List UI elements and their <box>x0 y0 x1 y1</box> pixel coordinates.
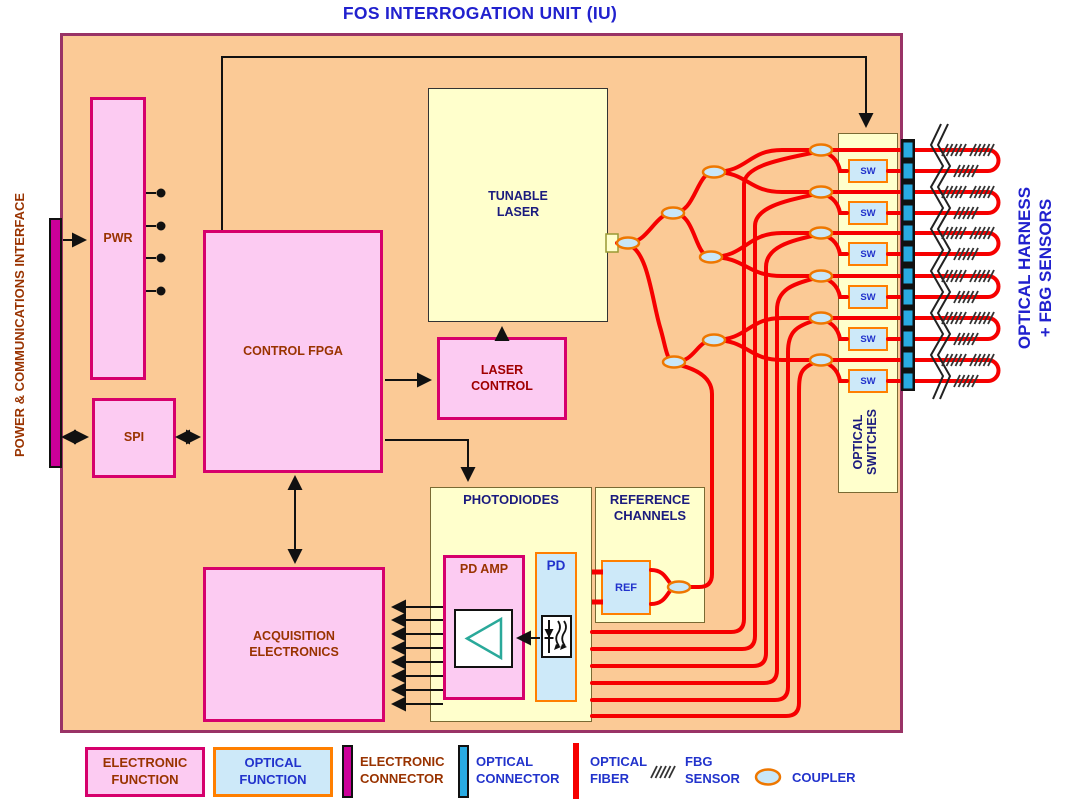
legend-optical-fiber-icon <box>573 743 579 799</box>
optical-harness-label: OPTICAL HARNESS + FBG SENSORS <box>1014 148 1060 388</box>
legend-optical-connector-label: OPTICAL CONNECTOR <box>476 754 576 788</box>
switch-2: SW <box>848 201 888 225</box>
control-fpga-box: CONTROL FPGA <box>203 230 383 473</box>
legend-optical-fiber-label: OPTICAL FIBER <box>590 754 670 788</box>
page-title: FOS INTERROGATION UNIT (IU) <box>200 3 760 24</box>
switch-3: SW <box>848 242 888 266</box>
pwr-label: PWR <box>103 231 132 247</box>
laser-control-label: LASER CONTROL <box>462 363 542 394</box>
switch-5-label: SW <box>860 334 875 345</box>
switch-6-label: SW <box>860 376 875 387</box>
harness-break-symbol <box>931 124 950 399</box>
switch-5: SW <box>848 327 888 351</box>
pd-amp-label: PD AMP <box>446 562 522 578</box>
legend-optical-function-label: OPTICAL FUNCTION <box>228 755 318 789</box>
legend-electronic-connector-label: ELECTRONIC CONNECTOR <box>360 754 470 788</box>
ref-label: REF <box>615 582 637 594</box>
legend-fbg-sensor-label: FBG SENSOR <box>685 754 755 788</box>
optical-connector-column <box>901 139 915 391</box>
power-comms-connector <box>49 218 62 468</box>
legend-coupler-label: COUPLER <box>792 770 882 787</box>
optical-switches-label: OPTICAL SWITCHES <box>851 387 881 497</box>
diagram-canvas: FOS INTERROGATION UNIT (IU) TUNABLE LASE… <box>0 0 1067 803</box>
laser-control-box: LASER CONTROL <box>437 337 567 420</box>
legend-electronic-function-label: ELECTRONIC FUNCTION <box>95 755 195 789</box>
legend-optical-function: OPTICAL FUNCTION <box>213 747 333 797</box>
switch-2-label: SW <box>860 208 875 219</box>
acquisition-electronics-box: ACQUISITION ELECTRONICS <box>203 567 385 722</box>
switch-6: SW <box>848 369 888 393</box>
reference-channels-label: REFERENCE CHANNELS <box>596 492 704 525</box>
switch-4-label: SW <box>860 292 875 303</box>
pd-box: PD <box>535 552 577 702</box>
optical-harness-line2: + FBG SENSORS <box>1036 199 1055 337</box>
optical-harness-line1: OPTICAL HARNESS <box>1015 187 1034 349</box>
spi-label: SPI <box>124 430 144 446</box>
ref-box: REF <box>601 560 651 615</box>
photodiodes-label: PHOTODIODES <box>431 492 591 508</box>
switch-1: SW <box>848 159 888 183</box>
pd-amp-box: PD AMP <box>443 555 525 700</box>
spi-box: SPI <box>92 398 176 478</box>
legend-coupler-icon <box>756 770 780 785</box>
power-comms-interface-label: POWER & COMMUNICATIONS INTERFACE <box>12 160 32 490</box>
switch-4: SW <box>848 285 888 309</box>
pd-label: PD <box>537 558 575 573</box>
legend-optical-connector-icon <box>458 745 469 798</box>
tunable-laser-box: TUNABLE LASER <box>428 88 608 322</box>
legend-electronic-connector-icon <box>342 745 353 798</box>
switch-3-label: SW <box>860 249 875 260</box>
legend-electronic-function: ELECTRONIC FUNCTION <box>85 747 205 797</box>
switch-1-label: SW <box>860 166 875 177</box>
pwr-box: PWR <box>90 97 146 380</box>
acquisition-electronics-label: ACQUISITION ELECTRONICS <box>234 629 354 660</box>
control-fpga-label: CONTROL FPGA <box>243 344 343 360</box>
tunable-laser-label: TUNABLE LASER <box>473 189 563 220</box>
